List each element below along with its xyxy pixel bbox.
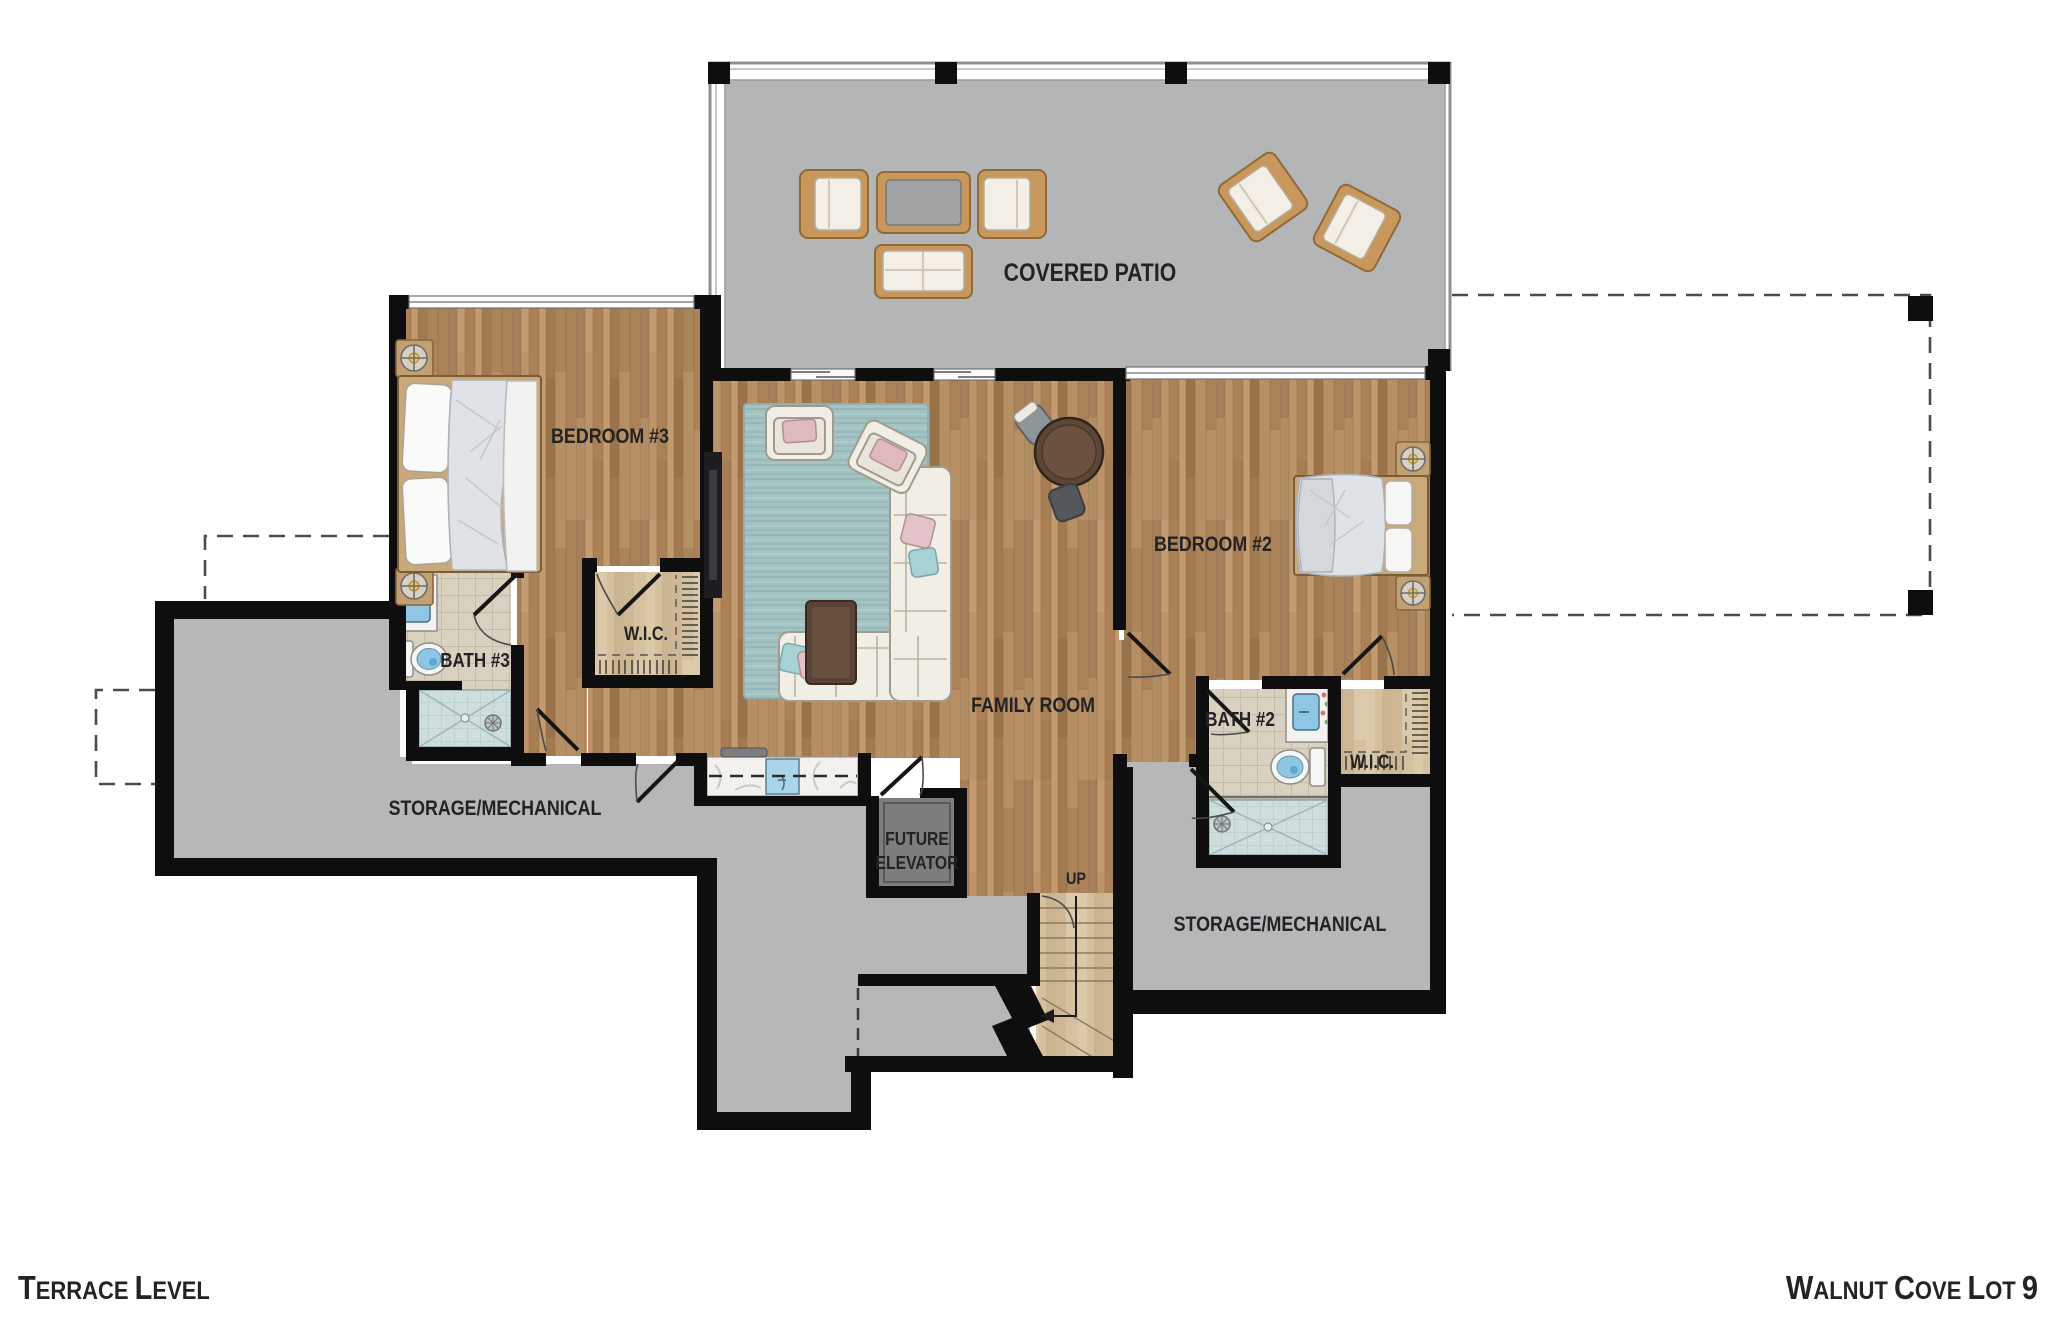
svg-text:ELEVATOR: ELEVATOR — [876, 852, 960, 874]
svg-text:BATH #2: BATH #2 — [1205, 708, 1275, 731]
svg-text:FUTURE: FUTURE — [885, 828, 949, 850]
svg-text:COVERED PATIO: COVERED PATIO — [1004, 258, 1177, 286]
svg-text:BEDROOM #3: BEDROOM #3 — [551, 425, 669, 449]
svg-text:BATH #3: BATH #3 — [440, 649, 510, 672]
svg-text:BEDROOM #2: BEDROOM #2 — [1154, 533, 1272, 557]
svg-text:STORAGE/MECHANICAL: STORAGE/MECHANICAL — [389, 797, 602, 821]
svg-text:W.I.C.: W.I.C. — [1350, 751, 1394, 773]
svg-text:FAMILY ROOM: FAMILY ROOM — [971, 694, 1095, 718]
svg-text:W.I.C.: W.I.C. — [624, 623, 668, 645]
svg-text:STORAGE/MECHANICAL: STORAGE/MECHANICAL — [1174, 913, 1387, 937]
svg-text:UP: UP — [1066, 870, 1086, 888]
